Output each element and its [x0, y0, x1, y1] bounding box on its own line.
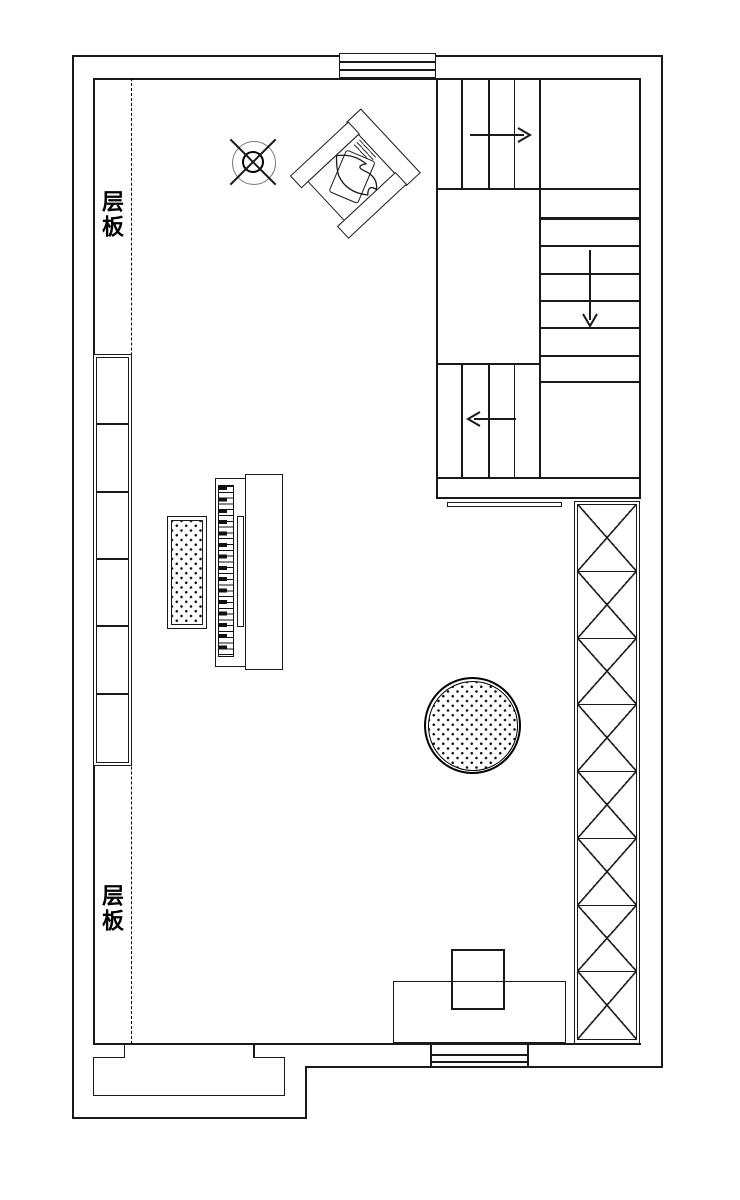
- bottom-window-line-1: [430, 1054, 528, 1056]
- lattice-cell: [578, 772, 636, 839]
- bottom-bay-opening: [125, 1056, 253, 1060]
- shelf-cell: [97, 493, 128, 560]
- stair-arrow-right-icon: [468, 127, 534, 143]
- stair-tread: [461, 363, 463, 477]
- lattice-cell: [578, 572, 636, 639]
- stair-tread: [539, 217, 639, 220]
- lattice-cell: [578, 705, 636, 772]
- lattice-cell: [578, 639, 636, 706]
- piano-music-desk: [237, 516, 244, 627]
- bottom-bay-jamb: [124, 1044, 126, 1058]
- piano-body: [245, 474, 283, 670]
- stair-mid-divider: [539, 78, 541, 477]
- outer-wall-right: [661, 55, 663, 1068]
- shelf-label-top: 层板: [100, 190, 122, 240]
- stair-arrow-down-icon: [582, 248, 598, 330]
- outer-wall-step: [305, 1066, 307, 1119]
- door-track: [447, 502, 562, 507]
- lattice-cell: [578, 972, 636, 1039]
- shelf-cell: [97, 358, 128, 425]
- stair-tread: [461, 78, 463, 188]
- outer-wall-bottom-left: [72, 1117, 307, 1119]
- lattice-cell: [578, 505, 636, 572]
- bottom-bay: [93, 1057, 285, 1096]
- outer-wall-bottom-right: [305, 1066, 663, 1068]
- inner-wall-bottom: [93, 1043, 641, 1045]
- inner-wall-top: [93, 78, 641, 80]
- stair-wall-left: [436, 78, 438, 499]
- outer-wall-left: [72, 55, 74, 1119]
- shelf-cell: [97, 425, 128, 492]
- bottom-cabinet-box: [451, 949, 505, 1010]
- top-window: [339, 53, 436, 78]
- stair-tread: [539, 245, 639, 247]
- stair-band-top: [436, 477, 641, 479]
- stair-tread: [539, 381, 639, 383]
- lattice-cell: [578, 906, 636, 973]
- round-rug: [424, 677, 521, 774]
- shelf-column: [93, 354, 132, 766]
- top-window-line-1: [339, 61, 436, 63]
- stair-arrow-left-icon: [464, 411, 518, 427]
- bottom-bay-jamb: [253, 1044, 255, 1058]
- shelf-cell: [97, 695, 128, 762]
- stair-band-bottom: [436, 497, 641, 499]
- lattice-railing: [574, 501, 641, 1044]
- floor-plan: 层板 层板: [0, 0, 740, 1200]
- bottom-window-edge: [430, 1044, 432, 1068]
- piano-black-keys: [219, 486, 227, 656]
- piano-bench-cushion: [171, 520, 203, 625]
- stair-tread: [539, 355, 639, 357]
- shelf-cell: [97, 560, 128, 627]
- shelf-cell: [97, 627, 128, 694]
- bottom-window-line-2: [430, 1061, 528, 1063]
- shelf-label-bottom: 层板: [100, 884, 122, 934]
- round-rug-inner: [428, 681, 518, 771]
- lattice-cell: [578, 839, 636, 906]
- armchair: [289, 108, 421, 239]
- top-window-line-2: [339, 69, 436, 71]
- inner-wall-right: [639, 78, 641, 499]
- bottom-window-edge: [527, 1044, 529, 1068]
- piano-bench: [167, 516, 207, 629]
